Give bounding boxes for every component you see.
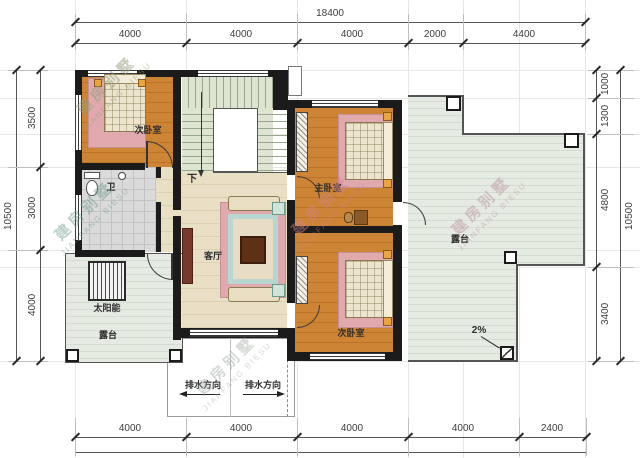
- terrace-right-floor: [408, 95, 585, 362]
- bedside-lamp: [383, 179, 392, 188]
- door-leaf: [146, 141, 148, 168]
- solar-water-heater-label: 太阳能: [85, 304, 129, 314]
- pillow: [383, 122, 393, 180]
- bedroom-bottom-right-label: 次卧室: [331, 329, 371, 339]
- slope-label: 2%: [467, 325, 491, 336]
- column: [66, 349, 79, 362]
- dim-right-total: 10500: [623, 187, 636, 245]
- terrace-left-label: 露台: [93, 331, 123, 341]
- dim-top-seg-1: 4000: [100, 30, 160, 40]
- roof-notch: [288, 66, 302, 96]
- stair-flight-left: [182, 108, 213, 172]
- dim-right-seg-2: 1300: [599, 98, 612, 134]
- wardrobe: [296, 112, 308, 172]
- column: [169, 349, 182, 362]
- terrace-parapet: [516, 264, 518, 362]
- dim-right-seg-1: 1000: [599, 66, 612, 102]
- dim-bottom-seg-3: 4000: [322, 424, 382, 434]
- wall: [393, 225, 402, 361]
- wall: [393, 100, 402, 202]
- lower-roof-outline: [167, 338, 295, 417]
- dim-bottom-seg-4: 4000: [433, 424, 493, 434]
- grid-line: [585, 0, 586, 458]
- terrace-parapet: [462, 95, 464, 135]
- toilet-bowl: [86, 180, 98, 196]
- dim-top-total: 18400: [300, 9, 360, 19]
- dim-bottom-seg-5: 2400: [522, 424, 582, 434]
- dim-guide: [8, 250, 48, 251]
- dim-line-top-segments: [75, 43, 586, 44]
- drain-direction-left-label: 排水方向: [173, 381, 233, 391]
- column: [504, 251, 517, 264]
- bedside-lamp: [138, 79, 146, 87]
- master-bedroom-label: 主卧室: [309, 184, 347, 194]
- bedroom-top-left-label: 次卧室: [128, 126, 168, 136]
- stair-void: [213, 108, 258, 172]
- window: [75, 95, 82, 150]
- dim-top-seg-3: 4000: [322, 30, 382, 40]
- wall: [273, 70, 288, 110]
- terrace-parapet: [408, 360, 518, 362]
- roof-drain: [500, 346, 514, 360]
- drain-direction-right-label: 排水方向: [233, 381, 293, 391]
- dim-bottom-seg-1: 4000: [100, 424, 160, 434]
- floor-plan-canvas: 18400 4000 4000 4000 2000 4400 4000 4000…: [0, 0, 640, 458]
- wall-thin: [156, 167, 161, 178]
- wall: [295, 226, 393, 233]
- dim-right-seg-4: 3400: [599, 296, 612, 332]
- floor-drain: [118, 172, 126, 180]
- dim-top-seg-4: 2000: [405, 30, 465, 40]
- wall: [75, 163, 145, 170]
- terrace-right-label: 露台: [445, 235, 475, 245]
- dim-line-top-total: [75, 22, 586, 23]
- window: [190, 329, 278, 337]
- window: [312, 100, 378, 108]
- dim-line-bottom-segments: [75, 437, 587, 438]
- side-table: [272, 284, 285, 297]
- terrace-parapet: [516, 264, 584, 266]
- wall: [75, 250, 145, 257]
- bedside-lamp: [94, 79, 102, 87]
- lower-roof-divider: [230, 338, 231, 417]
- window: [198, 70, 268, 77]
- toilet-tank: [84, 172, 100, 179]
- dim-line-right-segments: [596, 70, 597, 361]
- dim-left-seg-2: 3000: [26, 186, 39, 230]
- drain-arrow-left-head: [179, 391, 187, 397]
- window: [310, 353, 385, 360]
- terrace-parapet: [583, 133, 585, 266]
- door-leaf: [171, 254, 173, 280]
- column: [564, 133, 579, 148]
- dim-right-seg-3: 4800: [599, 182, 612, 218]
- dim-line-right-total: [620, 70, 621, 361]
- wardrobe: [296, 256, 308, 304]
- wall: [173, 216, 181, 340]
- coffee-table: [240, 236, 266, 264]
- solar-water-heater: [88, 261, 126, 301]
- wall: [287, 100, 295, 175]
- column: [446, 96, 461, 111]
- dim-top-seg-5: 4400: [494, 30, 554, 40]
- side-table: [272, 202, 285, 215]
- tv-cabinet: [182, 228, 193, 284]
- wall-thin: [156, 202, 161, 252]
- dim-left-seg-3: 4000: [26, 283, 39, 327]
- chair: [344, 212, 353, 223]
- stair-flight-top: [182, 77, 273, 108]
- dim-left-total: 10500: [2, 187, 15, 245]
- wall: [173, 70, 181, 210]
- bedside-lamp: [383, 112, 392, 121]
- dim-line-left-total: [16, 70, 17, 361]
- living-room-label: 客厅: [200, 252, 226, 262]
- window: [75, 195, 82, 240]
- wall: [287, 200, 295, 303]
- desk: [354, 210, 368, 225]
- stair-direction-arrow: [198, 170, 204, 177]
- stair-direction-line: [201, 92, 202, 172]
- drain-arrow-left-line: [186, 394, 220, 395]
- dim-guide: [8, 167, 48, 168]
- stair-flight-right: [258, 108, 288, 172]
- stair-living-boundary: [213, 172, 288, 173]
- dim-top-seg-2: 4000: [211, 30, 271, 40]
- bedside-lamp: [383, 317, 392, 326]
- bedside-lamp: [383, 250, 392, 259]
- stairs-down-label: 下: [186, 174, 198, 185]
- dim-line-left-segments: [40, 70, 41, 361]
- bathroom-label: 卫: [104, 183, 118, 193]
- dim-left-seg-1: 3500: [26, 96, 39, 140]
- dim-line-bottom-outer: [75, 452, 587, 453]
- dim-bottom-seg-2: 4000: [211, 424, 271, 434]
- pillow: [383, 260, 393, 318]
- drain-arrow-right-head: [277, 391, 285, 397]
- drain-arrow-right-line: [243, 394, 277, 395]
